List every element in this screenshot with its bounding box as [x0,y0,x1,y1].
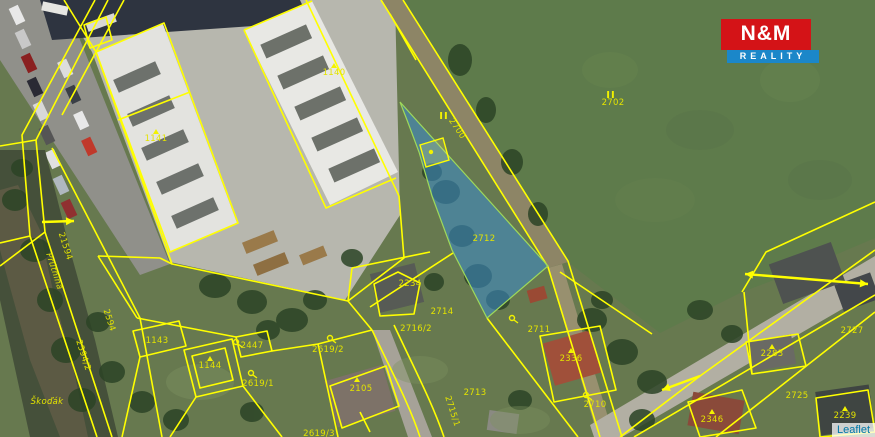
parcel-label-2711: 2711 [528,325,551,335]
parcel-label-1143: 1143 [146,336,169,346]
logo-reality-text: REALITY [727,50,819,63]
parcel-label-2710: 2710 [584,400,607,410]
parcel-label-2725: 2725 [786,391,809,401]
parcel-label-2727: 2727 [841,326,864,336]
parcel-label-1140: 1140 [323,68,346,78]
parcel-label-2714: 2714 [431,307,454,317]
map-viewport[interactable]: IIII 11411140270227002712223427142716/22… [0,0,875,437]
parcel-label-2336: 2336 [560,354,583,364]
parcel-label-2346: 2346 [701,415,724,425]
parcel-label-2713: 2713 [464,388,487,398]
parcel-label-2619-2: 2619/2 [312,345,344,355]
parcel-label-2239: 2239 [834,411,857,421]
parcel-label-2712: 2712 [473,234,496,244]
parcel-label-2234: 2234 [399,279,422,289]
nm-reality-logo: N&M REALITY [721,19,821,63]
parcel-label-2619-1: 2619/1 [242,379,274,389]
parcel-label-2619-3: 2619/3 [303,429,335,437]
parcel-label-škoďák: Škoďák [31,395,65,407]
leaflet-attribution-link[interactable]: Leaflet [832,423,875,437]
parcel-label-2283: 2283 [761,349,784,359]
parcel-label-2105: 2105 [350,384,373,394]
parcel-label-2447: 2447 [241,341,264,351]
parcel-label-1144: 1144 [199,361,222,371]
point-symbol [429,150,433,154]
satellite-map: IIII 11411140270227002712223427142716/22… [0,0,875,437]
parcel-label-2702: 2702 [602,98,625,108]
parcel-label-1141: 1141 [145,134,168,144]
logo-nm-text: N&M [721,19,811,50]
parcel-label-2716-2: 2716/2 [400,324,432,334]
